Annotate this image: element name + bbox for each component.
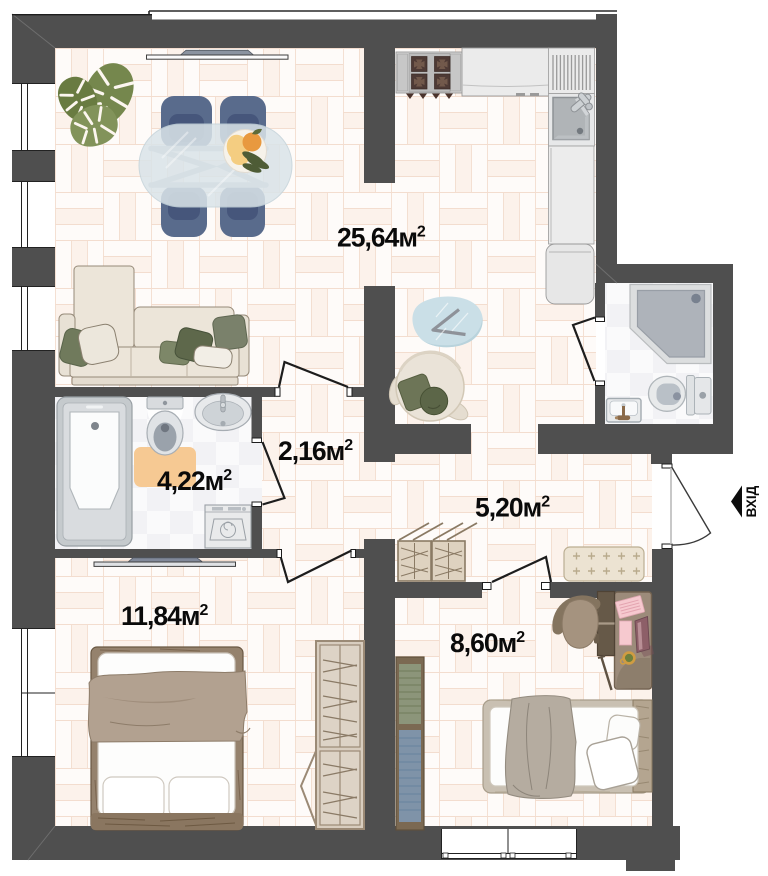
svg-text:5,20м2: 5,20м2	[475, 493, 550, 523]
svg-text:25,64м2: 25,64м2	[337, 223, 426, 253]
svg-text:8,60м2: 8,60м2	[450, 628, 525, 658]
svg-text:ВХІД: ВХІД	[744, 485, 759, 517]
svg-text:11,84м2: 11,84м2	[121, 601, 208, 631]
svg-text:4,22м2: 4,22м2	[157, 466, 232, 496]
svg-text:2,16м2: 2,16м2	[278, 436, 353, 466]
